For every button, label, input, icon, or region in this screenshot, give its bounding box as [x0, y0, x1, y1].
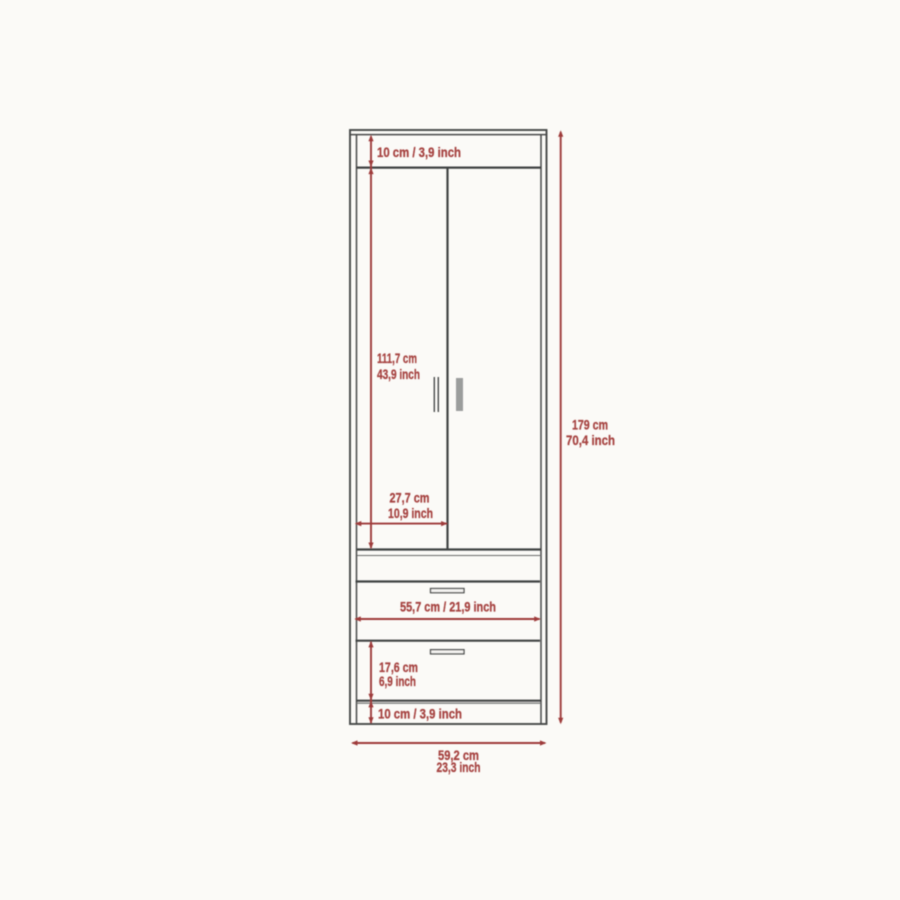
svg-text:10 cm / 3,9 inch: 10 cm / 3,9 inch	[378, 706, 462, 722]
svg-text:10 cm / 3,9 inch: 10 cm / 3,9 inch	[377, 145, 461, 161]
svg-text:23,3 inch: 23,3 inch	[437, 760, 481, 776]
svg-text:43,9 inch: 43,9 inch	[377, 367, 420, 383]
svg-text:111,7 cm: 111,7 cm	[377, 351, 417, 367]
svg-text:70,4 inch: 70,4 inch	[566, 433, 615, 449]
svg-text:179 cm: 179 cm	[572, 417, 608, 433]
svg-text:6,9 inch: 6,9 inch	[379, 674, 416, 690]
svg-text:55,7 cm / 21,9 inch: 55,7 cm / 21,9 inch	[400, 599, 496, 615]
svg-text:27,7 cm: 27,7 cm	[390, 490, 430, 506]
svg-text:10,9 inch: 10,9 inch	[388, 506, 433, 522]
